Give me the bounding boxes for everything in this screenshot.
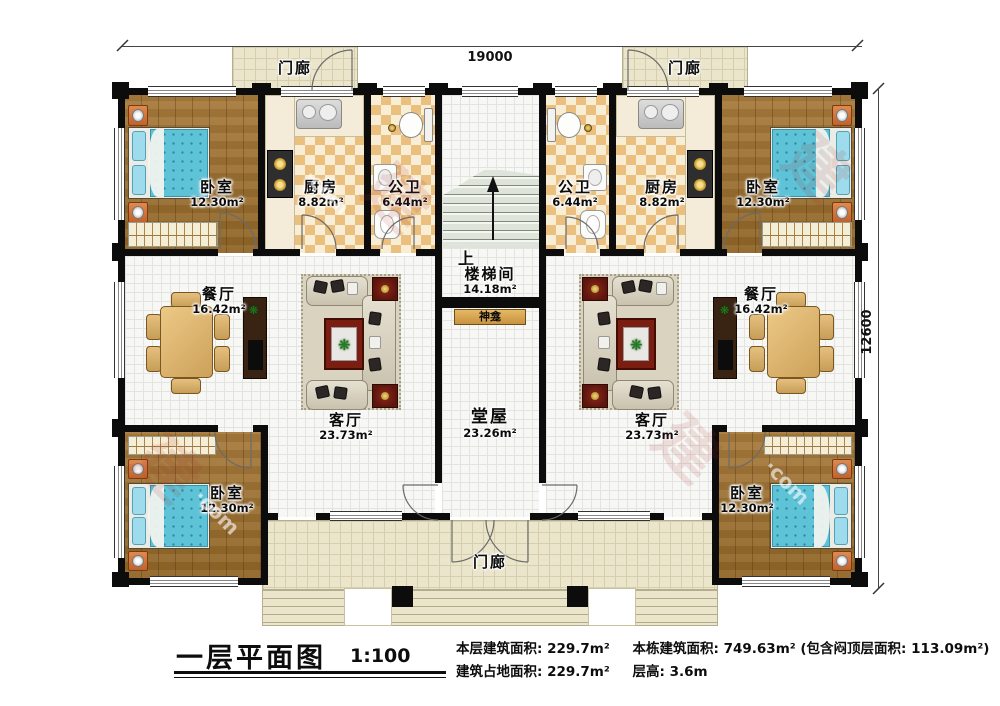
window <box>854 128 865 220</box>
end-table <box>372 384 398 408</box>
window <box>148 86 236 97</box>
dining-chair <box>749 314 765 340</box>
end-table <box>372 277 398 301</box>
kitchen-sink <box>296 99 342 129</box>
corner-block <box>603 83 622 95</box>
plant-icon: ❋ <box>338 336 351 354</box>
room-label-porch-top-right: 门廊 <box>640 60 730 77</box>
window <box>114 128 125 220</box>
closet <box>128 222 218 247</box>
nightstand <box>128 202 148 223</box>
toilet <box>547 108 556 142</box>
plan-title: 一层平面图 <box>176 636 326 675</box>
window <box>578 511 650 521</box>
nightstand <box>832 202 852 223</box>
tv <box>718 340 733 370</box>
wall <box>416 249 438 256</box>
wall <box>336 249 380 256</box>
dining-table <box>160 306 213 378</box>
wall <box>715 88 722 256</box>
corner-block <box>709 83 728 95</box>
end-table <box>582 277 608 301</box>
closet <box>128 436 216 455</box>
corner-block <box>855 419 868 437</box>
title-underline <box>174 677 446 678</box>
room-label-living-right: 客厅 23.73m² <box>607 412 697 442</box>
room-label-kitchen-left: 厨房 8.82m² <box>276 179 366 209</box>
plan-scale: 1:100 <box>350 645 410 667</box>
window <box>281 86 353 97</box>
room-label-hall: 堂屋 23.26m² <box>445 408 535 440</box>
window <box>114 282 125 378</box>
wall <box>435 513 450 520</box>
wall <box>609 88 616 256</box>
room-label-living-left: 客厅 23.73m² <box>301 412 391 442</box>
step-landing-left <box>344 588 392 626</box>
corner-block <box>112 572 129 587</box>
corner-block <box>855 243 868 261</box>
dining-chair <box>818 314 834 340</box>
nightstand <box>128 551 148 571</box>
dining-chair <box>818 346 834 372</box>
step-landing-right <box>588 588 636 626</box>
stat-footprint-area: 建筑占地面积: 229.7m² <box>456 664 610 680</box>
corner-block <box>533 83 552 95</box>
nightstand <box>128 459 148 479</box>
room-label-kitchen-right: 厨房 8.82m² <box>617 179 707 209</box>
window <box>742 576 830 587</box>
shower-head <box>388 124 396 132</box>
window <box>627 86 699 97</box>
stat-floor-area: 本层建筑面积: 229.7m² <box>456 641 610 657</box>
wall <box>762 425 862 432</box>
corner-block <box>112 419 125 437</box>
corner-block <box>112 243 125 261</box>
room-label-bedroom-bl: 卧室 12.30m² <box>182 485 272 515</box>
end-table <box>582 384 608 408</box>
nightstand <box>832 105 852 126</box>
room-label-porch-top-left: 门廊 <box>250 60 340 77</box>
shower-head <box>584 124 592 132</box>
dining-chair <box>171 378 201 394</box>
wall <box>118 425 218 432</box>
nightstand <box>128 105 148 126</box>
wall <box>258 88 265 256</box>
dining-chair <box>214 346 230 372</box>
stat-building-area: 本栋建筑面积: 749.63m² (包含闷顶层面积: 113.09m²) <box>633 641 990 657</box>
wash-basin <box>580 210 606 239</box>
corner-block <box>851 82 868 99</box>
window <box>555 86 597 97</box>
dimension-line-top <box>122 46 862 47</box>
nightstand <box>832 551 852 571</box>
dining-chair <box>749 346 765 372</box>
stats-line-1: 本层建筑面积: 229.7m² 本栋建筑面积: 749.63m² (包含闷顶层面… <box>456 637 1000 657</box>
room-label-bedroom-tl: 卧室 12.30m² <box>172 179 262 209</box>
toilet <box>424 108 433 142</box>
wall <box>118 249 218 256</box>
tv <box>248 340 263 370</box>
wall <box>680 249 727 256</box>
dining-chair <box>214 314 230 340</box>
room-label-bedroom-tr: 卧室 12.30m² <box>718 179 808 209</box>
wall <box>435 88 442 483</box>
sofa <box>612 380 674 410</box>
corner-block <box>358 83 377 95</box>
window <box>330 511 402 521</box>
stat-storey-height: 层高: 3.6m <box>633 664 708 680</box>
room-label-bath-left: 公卫 6.44m² <box>360 179 450 209</box>
shrine-niche: 神龛 <box>454 309 526 325</box>
dimension-line-right <box>878 88 879 588</box>
kitchen-sink <box>638 99 684 129</box>
stats-line-2: 建筑占地面积: 229.7m² 层高: 3.6m <box>456 660 726 680</box>
window <box>383 86 425 97</box>
shrine-wall <box>441 297 539 308</box>
room-label-porch-bottom: 门廊 <box>445 554 535 571</box>
window <box>854 466 865 558</box>
wash-basin <box>374 210 400 239</box>
window <box>150 576 238 587</box>
window <box>744 86 832 97</box>
title-underline <box>174 671 446 674</box>
closet <box>764 436 852 455</box>
window <box>114 466 125 558</box>
room-label-stairwell: 楼梯间 14.18m² <box>445 266 535 296</box>
dimension-top: 19000 <box>458 50 522 65</box>
wall <box>364 88 371 256</box>
entry-steps <box>262 590 718 626</box>
porch-pillar <box>567 586 588 607</box>
wall <box>530 513 546 520</box>
nightstand <box>832 459 852 479</box>
dining-chair <box>776 378 806 394</box>
corner-block <box>851 572 868 587</box>
wall <box>600 249 644 256</box>
corner-block <box>112 82 129 99</box>
wall <box>762 249 862 256</box>
room-label-dining-left: 餐厅 16.42m² <box>174 286 264 316</box>
dining-table <box>767 306 820 378</box>
corner-block <box>252 83 271 95</box>
room-label-dining-right: 餐厅 16.42m² <box>716 286 806 316</box>
plant-icon: ❋ <box>630 336 643 354</box>
wall <box>253 249 300 256</box>
floor-plan: ❋ ❋ ❋ ❋ 神龛 <box>0 0 1000 706</box>
window <box>462 86 518 97</box>
room-label-bedroom-br: 卧室 12.30m² <box>702 485 792 515</box>
porch-pillar <box>392 586 413 607</box>
wall <box>539 88 546 483</box>
shrine-label: 神龛 <box>479 310 501 323</box>
room-label-bath-right: 公卫 6.44m² <box>530 179 620 209</box>
coffee-table: ❋ <box>616 318 656 370</box>
corner-block <box>429 83 448 95</box>
closet <box>762 222 852 247</box>
wall <box>542 249 564 256</box>
dimension-right: 12600 <box>860 302 876 362</box>
coffee-table: ❋ <box>324 318 364 370</box>
